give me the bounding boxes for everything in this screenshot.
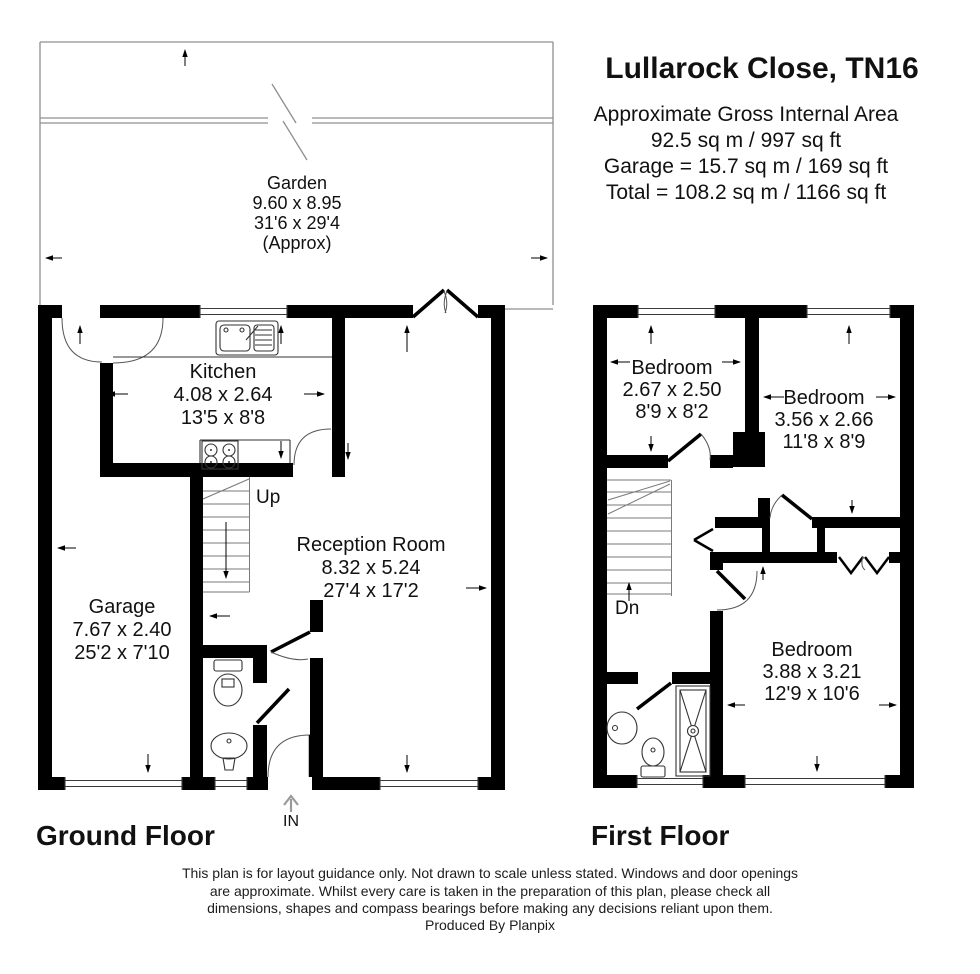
wc-basin-icon	[211, 733, 247, 770]
reception-name: Reception Room	[297, 534, 446, 556]
garage-label: Garage 7.67 x 2.40 25'2 x 7'10	[73, 596, 172, 664]
bedroom1-imperial: 8'9 x 8'2	[635, 401, 708, 423]
area-summary-line2: 92.5 sq m / 997 sq ft	[651, 129, 841, 152]
entrance-in-label: IN	[283, 813, 299, 830]
bathroom-door-leaf	[637, 683, 671, 709]
staircase-down	[607, 480, 672, 601]
bedroom3-label: Bedroom 3.88 x 3.21 12'9 x 10'6	[763, 639, 862, 705]
bedroom2-name: Bedroom	[783, 387, 864, 409]
stairs-up-label: Up	[256, 487, 280, 508]
garden-metric: 9.60 x 8.95	[252, 193, 341, 213]
bifold-cupboard-doors	[839, 556, 889, 573]
bedroom3-name: Bedroom	[771, 639, 852, 661]
bedroom3-metric: 3.88 x 3.21	[763, 661, 862, 683]
disclaimer-line1: This plan is for layout guidance only. N…	[182, 865, 798, 881]
wc-door-leaf	[257, 689, 289, 723]
disclaimer: This plan is for layout guidance only. N…	[182, 865, 798, 933]
wc-toilet-icon	[214, 660, 242, 706]
floorplan-canvas: Lullarock Close, TN16 Approximate Gross …	[0, 0, 980, 974]
area-summary-line3: Garage = 15.7 sq m / 169 sq ft	[604, 155, 888, 178]
reception-label: Reception Room 8.32 x 5.24 27'4 x 17'2	[297, 534, 446, 602]
bedroom2-label: Bedroom 3.56 x 2.66 11'8 x 8'9	[775, 387, 874, 453]
kitchen-reception-door-arc	[294, 429, 331, 465]
area-summary-line1: Approximate Gross Internal Area	[594, 103, 899, 126]
fence-break-icon	[272, 84, 307, 160]
ground-floor-title: Ground Floor	[36, 820, 215, 851]
front-door-arc	[268, 735, 310, 777]
bedroom3-imperial: 12'9 x 10'6	[764, 683, 860, 705]
bedroom2-door-leaf	[782, 495, 812, 519]
bedroom1-door-leaf	[668, 434, 701, 461]
bedroom2-imperial: 11'8 x 8'9	[783, 431, 866, 453]
disclaimer-line2: are approximate. Whilst every care is ta…	[210, 883, 770, 899]
kitchen-label: Kitchen 4.08 x 2.64 13'5 x 8'8	[174, 361, 273, 429]
disclaimer-line3: dimensions, shapes and compass bearings …	[207, 900, 773, 916]
french-doors-icon	[413, 290, 478, 317]
garage-name: Garage	[89, 596, 156, 618]
bedroom2-metric: 3.56 x 2.66	[775, 409, 874, 431]
bathroom-toilet-icon	[641, 738, 665, 777]
stairs-down-label: Dn	[615, 598, 639, 619]
kitchen-name: Kitchen	[190, 361, 257, 383]
area-summary-line4: Total = 108.2 sq m / 1166 sq ft	[606, 181, 887, 204]
landing-cupboard-door	[694, 529, 713, 551]
side-entrance-door-arc	[62, 318, 102, 362]
kitchen-metric: 4.08 x 2.64	[174, 384, 273, 406]
garden-imperial: 31'6 x 29'4	[254, 213, 340, 233]
bathroom-basin-icon	[607, 712, 637, 744]
kitchen-door-arc	[113, 318, 163, 363]
garden-label: Garden 9.60 x 8.95 31'6 x 29'4 (Approx)	[252, 173, 341, 253]
bedroom1-metric: 2.67 x 2.50	[623, 379, 722, 401]
floorplan-page: Lullarock Close, TN16 Approximate Gross …	[0, 0, 980, 974]
hall-door-leaf	[271, 632, 310, 652]
garage-imperial: 25'2 x 7'10	[74, 642, 170, 664]
reception-metric: 8.32 x 5.24	[322, 557, 421, 579]
entrance-arrow-icon	[284, 796, 298, 812]
shower-icon	[676, 686, 710, 776]
garden-name: Garden	[267, 173, 327, 193]
garage-metric: 7.67 x 2.40	[73, 619, 172, 641]
bedroom1-name: Bedroom	[631, 357, 712, 379]
kitchen-sink-icon	[216, 321, 278, 355]
page-title: Lullarock Close, TN16	[605, 52, 918, 85]
bedroom3-door-leaf	[717, 571, 745, 599]
first-floor-title: First Floor	[591, 820, 730, 851]
kitchen-imperial: 13'5 x 8'8	[181, 407, 265, 429]
bedroom1-label: Bedroom 2.67 x 2.50 8'9 x 8'2	[623, 357, 722, 423]
disclaimer-line4: Produced By Planpix	[425, 917, 555, 933]
staircase-up	[203, 477, 250, 592]
garden-note: (Approx)	[262, 233, 331, 253]
reception-imperial: 27'4 x 17'2	[323, 580, 419, 602]
